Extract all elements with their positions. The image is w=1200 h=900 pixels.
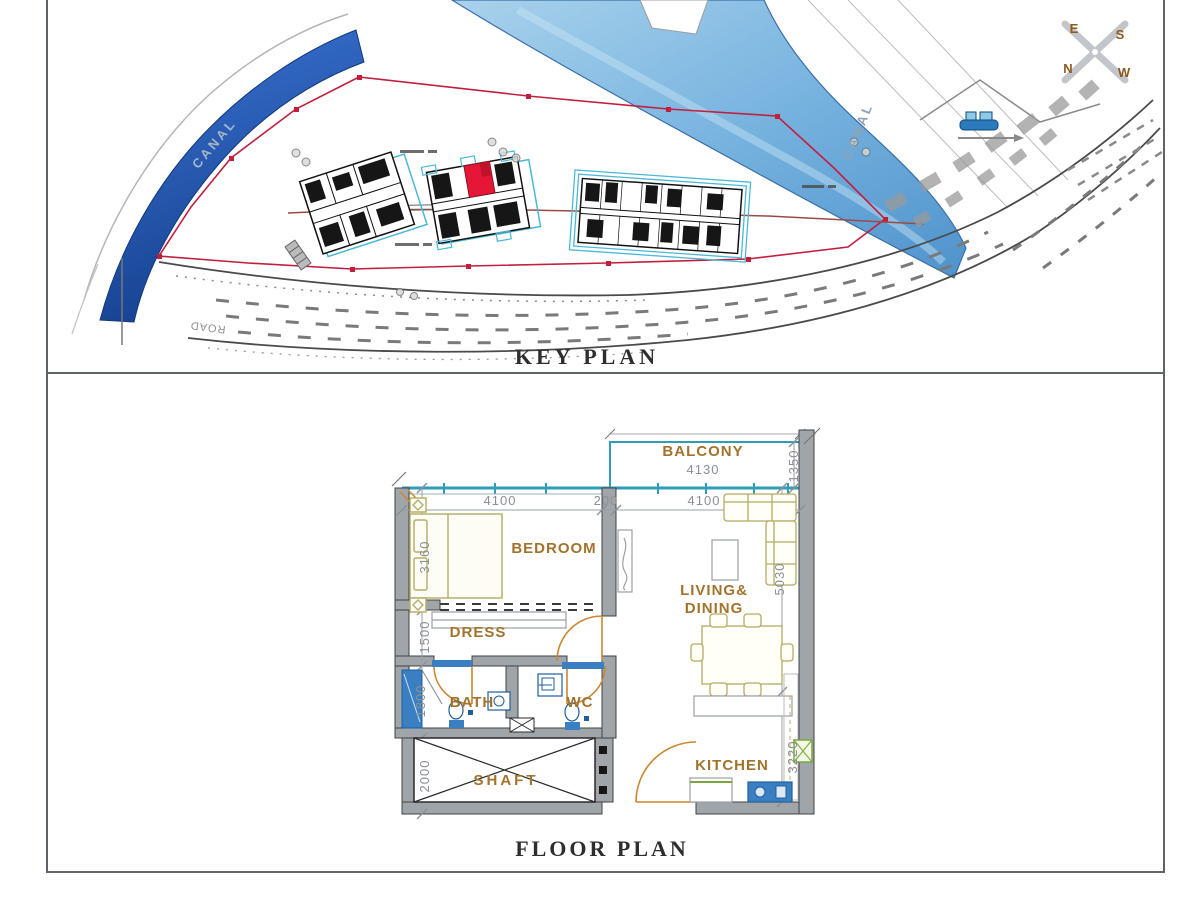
building-left bbox=[300, 148, 427, 257]
floor-plan-title: FLOOR PLAN bbox=[482, 836, 722, 862]
bedroom-label: BEDROOM bbox=[484, 540, 624, 557]
compass-east-label: E bbox=[1060, 21, 1088, 37]
dim-bedroom-width: 4100 bbox=[460, 493, 540, 509]
riser-boxes bbox=[599, 746, 607, 794]
compass-north-label: N bbox=[1054, 61, 1082, 77]
floor-plan-drawing bbox=[48, 374, 1163, 871]
architectural-sheet: CANAL CANAL ROAD E S N W KEY PLAN bbox=[0, 0, 1200, 900]
coffee-table bbox=[712, 540, 738, 580]
floor-plan-section: BALCONY BEDROOM DRESS BATH WC SHAFT LIVI… bbox=[48, 374, 1163, 871]
dim-shaft-depth: 2000 bbox=[417, 753, 433, 799]
balcony-label: BALCONY bbox=[643, 443, 763, 460]
dim-living-depth: 5030 bbox=[772, 556, 788, 602]
dim-bedroom-depth: 3160 bbox=[417, 534, 433, 580]
dim-living-width: 4100 bbox=[664, 493, 744, 509]
dim-balcony-depth: 1350 bbox=[786, 443, 802, 489]
shaft-label: SHAFT bbox=[436, 772, 576, 789]
dim-partition: 200 bbox=[586, 493, 626, 509]
dim-bath-depth: 1800 bbox=[413, 678, 429, 724]
building-right bbox=[569, 170, 750, 262]
dim-kitchen-depth: 3220 bbox=[785, 734, 801, 780]
dashed-partition bbox=[440, 604, 600, 610]
dining-set bbox=[691, 614, 793, 696]
key-plan-drawing bbox=[48, 0, 1163, 372]
living-label-line2: DINING bbox=[644, 600, 784, 617]
bedroom-door bbox=[557, 616, 602, 661]
living-label-line1: LIVING& bbox=[644, 582, 784, 599]
boat-icon bbox=[958, 112, 1024, 142]
dim-balcony-width: 4130 bbox=[643, 462, 763, 478]
dim-dress-depth: 1500 bbox=[417, 614, 433, 660]
wc-label: WC bbox=[540, 694, 620, 711]
kitchen-label: KITCHEN bbox=[662, 757, 802, 774]
dress-label: DRESS bbox=[418, 624, 538, 641]
key-plan-section: CANAL CANAL ROAD E S N W KEY PLAN bbox=[48, 0, 1163, 374]
compass-south-label: S bbox=[1106, 27, 1134, 43]
balcony-dim-line bbox=[605, 429, 816, 439]
bath-label: BATH bbox=[412, 694, 532, 711]
plot-outline bbox=[920, 80, 1100, 122]
building-middle bbox=[421, 147, 542, 252]
compass-west-label: W bbox=[1110, 65, 1138, 81]
key-plan-title: KEY PLAN bbox=[477, 344, 697, 370]
sheet-frame: CANAL CANAL ROAD E S N W KEY PLAN bbox=[46, 0, 1165, 873]
